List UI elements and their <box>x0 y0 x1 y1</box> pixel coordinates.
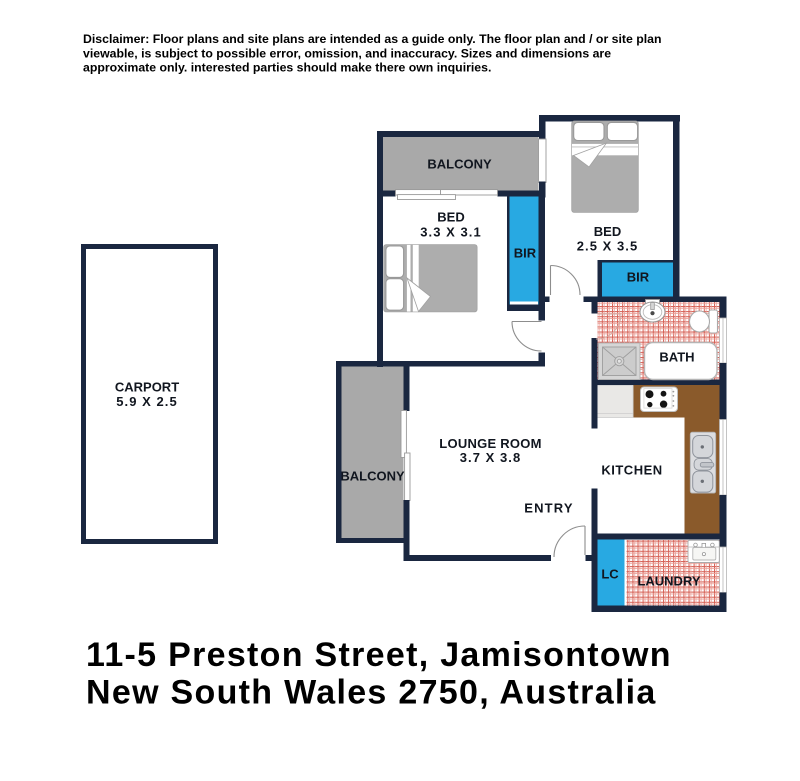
svg-text:3.7 X 3.8: 3.7 X 3.8 <box>460 450 522 465</box>
svg-text:BATH: BATH <box>659 350 694 365</box>
svg-text:BIR: BIR <box>627 270 650 285</box>
svg-text:LOUNGE ROOM: LOUNGE ROOM <box>439 436 541 451</box>
svg-text:ENTRY: ENTRY <box>524 501 574 516</box>
svg-text:viewable, is subject to possib: viewable, is subject to possible error, … <box>83 46 611 60</box>
svg-text:BED: BED <box>437 210 464 225</box>
svg-text:BALCONY: BALCONY <box>427 157 492 172</box>
svg-text:11-5 Preston Street, Jamisonto: 11-5 Preston Street, Jamisontown <box>86 636 672 674</box>
svg-text:3.3 X 3.1: 3.3 X 3.1 <box>420 225 482 240</box>
svg-text:KITCHEN: KITCHEN <box>601 463 662 478</box>
svg-text:Disclaimer: Floor plans and si: Disclaimer: Floor plans and site plans a… <box>83 32 662 46</box>
svg-text:BED: BED <box>594 224 621 239</box>
svg-text:2.5 X 3.5: 2.5 X 3.5 <box>577 239 639 254</box>
svg-text:CARPORT: CARPORT <box>115 380 179 395</box>
svg-text:BIR: BIR <box>514 246 537 261</box>
svg-text:approximate only. interested p: approximate only. interested parties sho… <box>83 61 491 75</box>
svg-text:5.9 X 2.5: 5.9 X 2.5 <box>116 394 178 409</box>
svg-text:LAUNDRY: LAUNDRY <box>637 574 700 589</box>
svg-text:BALCONY: BALCONY <box>340 469 405 484</box>
svg-text:New South Wales 2750, Australi: New South Wales 2750, Australia <box>86 674 657 712</box>
svg-text:LC: LC <box>601 567 619 582</box>
